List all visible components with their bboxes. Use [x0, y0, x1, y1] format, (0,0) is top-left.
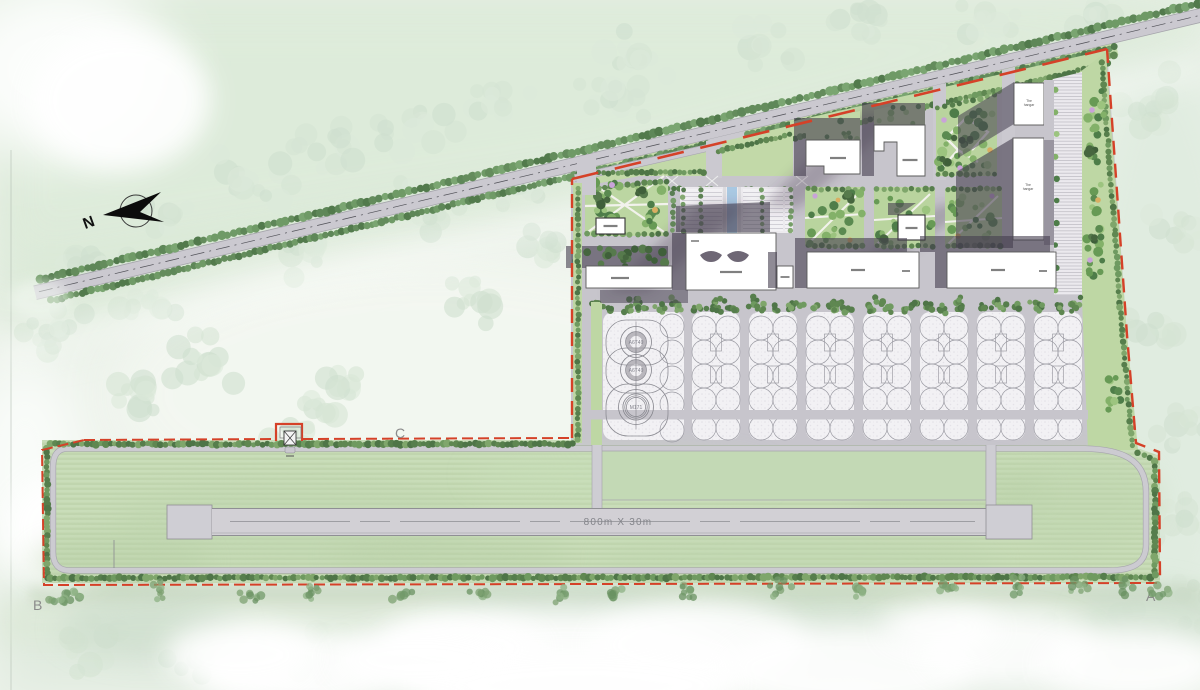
- svg-text:M171: M171: [630, 405, 643, 411]
- svg-text:hangar: hangar: [1023, 187, 1034, 191]
- svg-text:A6T49: A6T49: [629, 368, 644, 374]
- svg-text:C: C: [395, 425, 405, 441]
- svg-text:B: B: [33, 597, 42, 613]
- svg-text:800m X 30m: 800m X 30m: [584, 517, 653, 528]
- svg-text:hangar: hangar: [1024, 103, 1035, 107]
- svg-text:A6T49: A6T49: [629, 340, 644, 346]
